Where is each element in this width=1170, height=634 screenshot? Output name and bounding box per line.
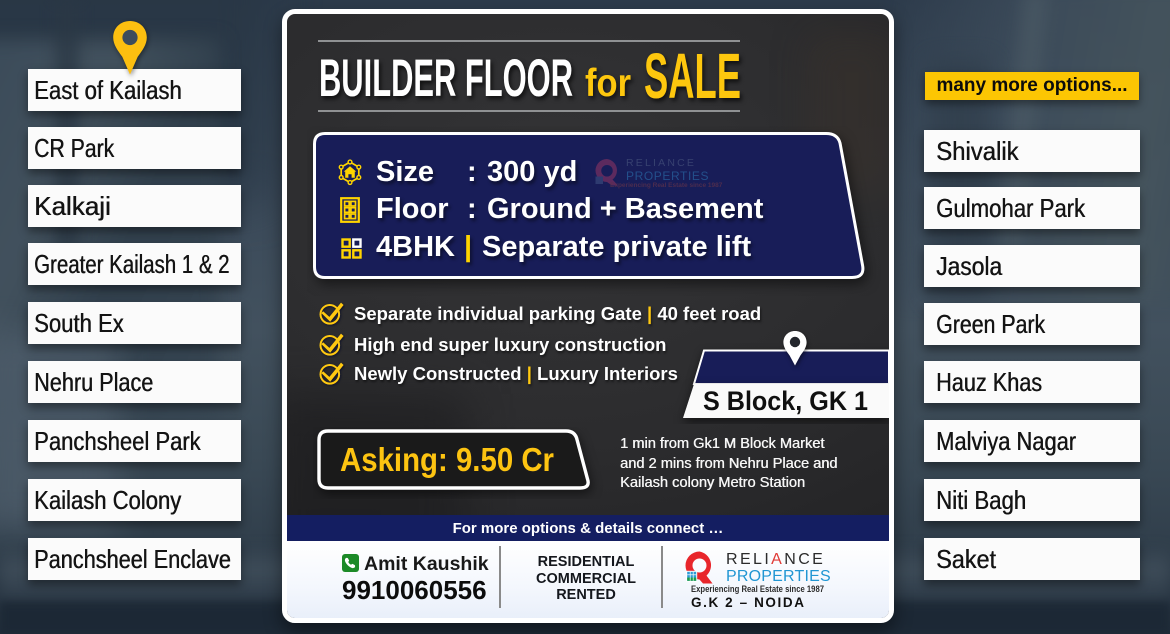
svg-text:BUILDER FLOOR: BUILDER FLOOR: [319, 49, 573, 108]
svg-text:for: for: [585, 62, 631, 105]
svg-text:S Block, GK 1: S Block, GK 1: [703, 386, 868, 416]
svg-text:SALE: SALE: [644, 40, 741, 112]
svg-text:Asking: 9.50 Cr: Asking: 9.50 Cr: [340, 441, 554, 478]
